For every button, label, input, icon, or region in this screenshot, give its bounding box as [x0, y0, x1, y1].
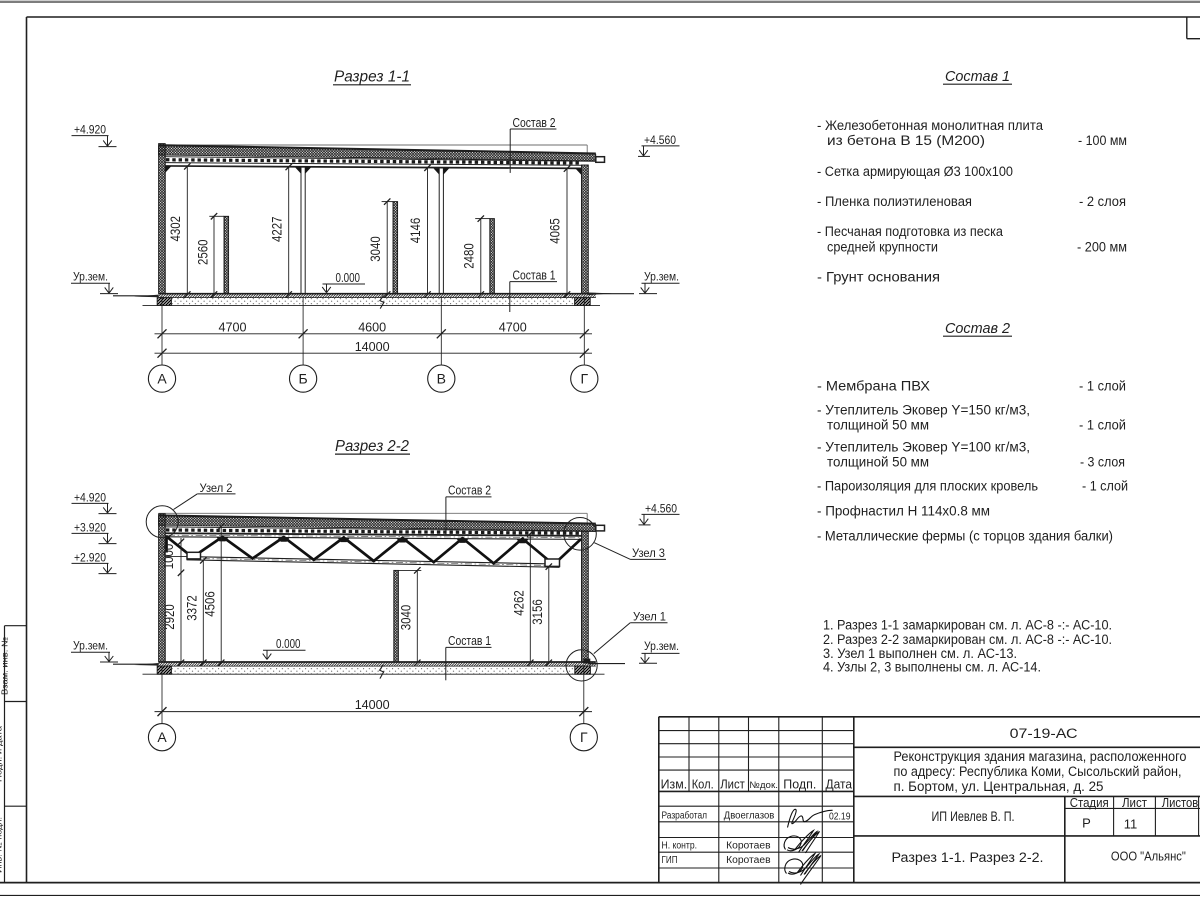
svg-text:№док.: №док. [749, 780, 778, 791]
svg-text:Состав 1: Состав 1 [513, 268, 556, 282]
svg-text:+3.920: +3.920 [74, 520, 106, 534]
svg-text:Узел 2: Узел 2 [200, 481, 233, 495]
svg-text:Реконструкция здания магазина,: Реконструкция здания магазина, расположе… [894, 749, 1187, 764]
svg-text:Ур.зем.: Ур.зем. [644, 639, 679, 653]
svg-text:+4.920: +4.920 [74, 123, 106, 137]
svg-text:3040: 3040 [368, 236, 383, 262]
svg-text:4262: 4262 [511, 590, 526, 616]
svg-text:- 1 слой: - 1 слой [1079, 378, 1126, 393]
svg-text:п. Бортом, ул. Центральная, д.: п. Бортом, ул. Центральная, д. 25 [894, 779, 1104, 794]
svg-text:4227: 4227 [269, 217, 284, 243]
svg-text:Состав 2: Состав 2 [448, 484, 491, 498]
svg-text:ИП Иевлев В. П.: ИП Иевлев В. П. [932, 809, 1015, 824]
svg-text:0.000: 0.000 [276, 637, 301, 651]
svg-text:Взам. инв. №: Взам. инв. № [0, 637, 10, 695]
svg-text:Ур.зем.: Ур.зем. [73, 270, 108, 284]
svg-text:- 1 слой: - 1 слой [1082, 479, 1128, 494]
svg-text:4146: 4146 [408, 218, 423, 244]
svg-text:Лист: Лист [720, 778, 745, 792]
svg-text:- 2 слоя: - 2 слоя [1079, 194, 1126, 209]
svg-text:Ур.зем.: Ур.зем. [644, 270, 679, 284]
svg-text:из бетона В 15 (М200): из бетона В 15 (М200) [827, 133, 985, 148]
svg-text:Листов: Листов [1162, 796, 1199, 810]
svg-text:В: В [437, 371, 446, 387]
svg-text:Р: Р [1082, 816, 1091, 831]
svg-text:Состав 2: Состав 2 [945, 320, 1011, 337]
svg-text:Дата: Дата [826, 778, 853, 792]
svg-text:07-19-АС: 07-19-АС [1010, 726, 1078, 741]
svg-text:14000: 14000 [355, 339, 390, 354]
svg-text:А: А [157, 371, 167, 387]
svg-text:11: 11 [1124, 817, 1138, 832]
svg-text:- 3 слоя: - 3 слоя [1080, 454, 1125, 469]
svg-text:3040: 3040 [398, 605, 413, 631]
svg-text:- Грунт основания: - Грунт основания [817, 269, 940, 284]
svg-text:4700: 4700 [219, 319, 247, 334]
svg-text:Разработал: Разработал [662, 811, 708, 822]
svg-text:Кол.: Кол. [692, 778, 714, 792]
svg-text:1000: 1000 [161, 544, 176, 570]
svg-text:Разрез 1-1. Разрез 2-2.: Разрез 1-1. Разрез 2-2. [892, 850, 1044, 865]
svg-text:Состав 1: Состав 1 [945, 68, 1010, 85]
svg-text:Коротаев: Коротаев [726, 855, 771, 866]
svg-text:Стадия: Стадия [1070, 796, 1109, 810]
svg-text:0.000: 0.000 [336, 271, 361, 285]
svg-text:- Утеплитель Эковер Y=100 кг/м: - Утеплитель Эковер Y=100 кг/м3, [817, 439, 1030, 454]
svg-text:Состав 2: Состав 2 [513, 116, 556, 130]
svg-text:- Песчаная подготовка из песка: - Песчаная подготовка из песка [817, 224, 1004, 239]
svg-text:по адресу: Республика Коми, Сы: по адресу: Республика Коми, Сысольский р… [894, 764, 1182, 779]
svg-text:+4.560: +4.560 [645, 501, 677, 515]
svg-text:Изм.: Изм. [661, 778, 688, 792]
svg-text:2560: 2560 [196, 240, 211, 265]
svg-text:Лист: Лист [1122, 796, 1147, 810]
svg-text:- Пароизоляция для плоских кро: - Пароизоляция для плоских кровель [817, 479, 1038, 494]
svg-text:Подп. и дата: Подп. и дата [0, 726, 4, 782]
svg-text:14000: 14000 [355, 697, 390, 712]
svg-text:Н. контр.: Н. контр. [662, 841, 698, 852]
svg-text:- Пленка полиэтиленовая: - Пленка полиэтиленовая [817, 194, 972, 209]
svg-text:ООО "Альянс": ООО "Альянс" [1111, 848, 1186, 863]
svg-text:- Утеплитель Эковер Y=150 кг/м: - Утеплитель Эковер Y=150 кг/м3, [817, 402, 1030, 417]
svg-text:+2.920: +2.920 [74, 550, 106, 564]
svg-text:- Сетка армирующая Ø3 100х100: - Сетка армирующая Ø3 100х100 [817, 164, 1013, 179]
svg-text:3372: 3372 [185, 595, 200, 621]
svg-text:1. Разрез 1-1 замаркирован см.: 1. Разрез 1-1 замаркирован см. л. АС-8 -… [823, 618, 1112, 633]
svg-text:Разрез 2-2: Разрез 2-2 [335, 438, 409, 455]
svg-text:- Металлические фермы (с торцо: - Металлические фермы (с торцов здания б… [817, 529, 1113, 544]
svg-text:средней крупности: средней крупности [827, 239, 938, 254]
svg-text:02.19: 02.19 [829, 812, 851, 823]
svg-text:Ур.зем.: Ур.зем. [73, 639, 108, 653]
svg-text:4. Узлы 2, 3 выполнены см. л.: 4. Узлы 2, 3 выполнены см. л. АС-14. [823, 660, 1041, 675]
svg-text:- 1 слой: - 1 слой [1079, 417, 1126, 432]
svg-text:- Мембрана ПВХ: - Мембрана ПВХ [817, 378, 930, 393]
svg-text:Подп.: Подп. [783, 778, 816, 792]
svg-text:3156: 3156 [530, 599, 545, 625]
svg-text:+4.560: +4.560 [644, 133, 676, 147]
svg-text:Разрез 1-1: Разрез 1-1 [334, 69, 410, 86]
svg-text:+4.920: +4.920 [74, 490, 106, 504]
svg-text:толщиной 50 мм: толщиной 50 мм [827, 417, 929, 432]
svg-text:- Профнастил Н 114х0.8 мм: - Профнастил Н 114х0.8 мм [817, 504, 990, 519]
svg-text:Узел 1: Узел 1 [633, 610, 666, 624]
svg-text:2480: 2480 [461, 243, 476, 269]
svg-text:- 200 мм: - 200 мм [1077, 239, 1127, 254]
svg-text:Г: Г [580, 729, 588, 745]
svg-text:2920: 2920 [162, 604, 177, 630]
svg-text:- Железобетонная монолитная п: - Железобетонная монолитная плита [817, 118, 1044, 133]
svg-text:4506: 4506 [203, 591, 218, 617]
svg-text:4302: 4302 [168, 216, 183, 242]
svg-text:Узел 3: Узел 3 [632, 546, 665, 560]
svg-text:Коротаев: Коротаев [726, 841, 771, 852]
svg-text:Состав 1: Состав 1 [448, 634, 491, 648]
svg-text:А: А [157, 729, 167, 745]
svg-text:Двоеглазов: Двоеглазов [724, 811, 775, 822]
svg-text:Г: Г [581, 371, 589, 387]
svg-text:- 100 мм: - 100 мм [1078, 133, 1127, 148]
svg-text:Инв. № подл.: Инв. № подл. [0, 817, 4, 873]
svg-text:толщиной 50 мм: толщиной 50 мм [827, 454, 929, 469]
svg-text:2. Разрез 2-2 замаркирован см.: 2. Разрез 2-2 замаркирован см. л. АС-8 -… [823, 632, 1112, 647]
svg-text:4065: 4065 [548, 218, 563, 244]
svg-text:Б: Б [299, 371, 308, 387]
svg-text:4600: 4600 [358, 319, 386, 334]
svg-text:ГИП: ГИП [662, 855, 678, 866]
svg-text:4700: 4700 [499, 319, 527, 334]
